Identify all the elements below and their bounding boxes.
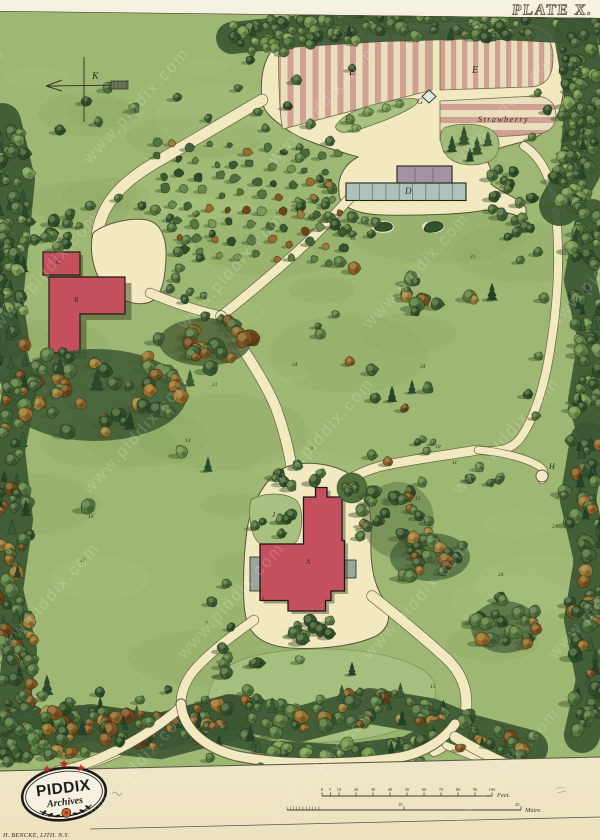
svg-text:12: 12 xyxy=(415,496,421,502)
svg-text:33: 33 xyxy=(349,236,356,242)
svg-text:D: D xyxy=(404,186,412,196)
svg-text:21: 21 xyxy=(552,524,558,530)
svg-text:20: 20 xyxy=(354,787,359,792)
svg-text:26: 26 xyxy=(156,343,162,349)
svg-text:10: 10 xyxy=(435,444,441,450)
svg-text:20: 20 xyxy=(515,802,520,807)
svg-text:A: A xyxy=(305,558,311,566)
svg-text:14: 14 xyxy=(185,437,191,444)
svg-text:10: 10 xyxy=(398,802,403,807)
svg-text:34: 34 xyxy=(431,533,438,540)
svg-text:22: 22 xyxy=(118,376,124,382)
svg-text:E: E xyxy=(471,65,478,76)
svg-text:PLATE X.: PLATE X. xyxy=(512,3,593,19)
svg-text:31: 31 xyxy=(469,254,476,260)
svg-text:10: 10 xyxy=(337,787,342,792)
svg-text:15: 15 xyxy=(430,684,436,690)
svg-text:16: 16 xyxy=(88,514,94,520)
svg-text:24: 24 xyxy=(498,571,504,578)
svg-text:G: G xyxy=(417,97,423,106)
svg-text:80: 80 xyxy=(456,787,461,792)
svg-text:1: 1 xyxy=(262,596,265,602)
svg-text:24: 24 xyxy=(292,361,298,368)
svg-text:40: 40 xyxy=(388,787,393,792)
svg-text:21: 21 xyxy=(212,382,218,388)
svg-text:31: 31 xyxy=(344,116,351,122)
svg-text:Feet.: Feet. xyxy=(496,792,511,799)
svg-text:B: B xyxy=(74,296,79,304)
svg-text:60: 60 xyxy=(422,787,427,792)
svg-text:H. BENCKE, LITH. N.Y.: H. BENCKE, LITH. N.Y. xyxy=(2,832,69,839)
svg-text:K: K xyxy=(91,71,100,82)
svg-text:70: 70 xyxy=(439,787,444,792)
svg-text:24: 24 xyxy=(420,363,426,370)
svg-text:23: 23 xyxy=(580,326,586,332)
svg-text:11: 11 xyxy=(452,460,457,466)
svg-text:30: 30 xyxy=(371,787,376,792)
svg-text:Metre.: Metre. xyxy=(524,807,542,814)
svg-text:50: 50 xyxy=(405,787,410,792)
